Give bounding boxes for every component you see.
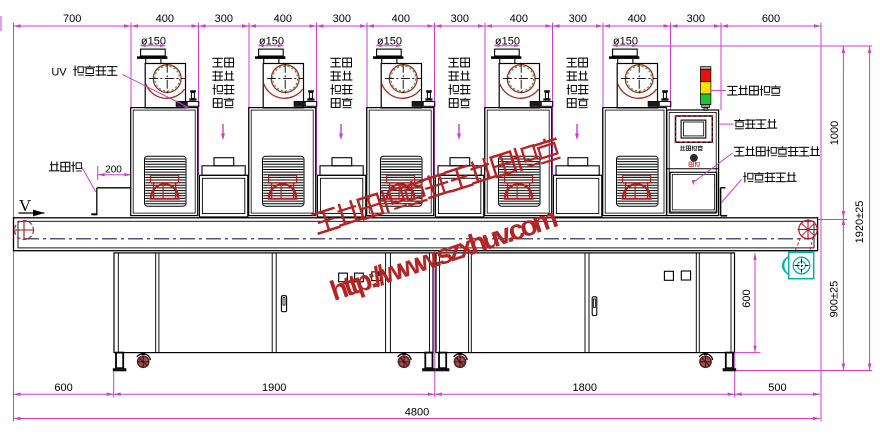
svg-text:300: 300 — [687, 13, 705, 25]
svg-text:UV: UV — [51, 67, 67, 79]
svg-text:4800: 4800 — [405, 407, 429, 419]
svg-text:500: 500 — [768, 382, 786, 394]
svg-text:400: 400 — [628, 13, 646, 25]
svg-text:600: 600 — [762, 13, 780, 25]
svg-text:300: 300 — [569, 13, 587, 25]
svg-text:900±25: 900±25 — [829, 281, 841, 318]
svg-text:1000: 1000 — [829, 121, 841, 145]
svg-text:1920±25: 1920±25 — [854, 201, 866, 244]
svg-text:300: 300 — [451, 13, 469, 25]
svg-text:300: 300 — [215, 13, 233, 25]
svg-text:200: 200 — [105, 165, 122, 176]
svg-text:600: 600 — [54, 382, 72, 394]
svg-text:V: V — [19, 196, 32, 215]
svg-text:400: 400 — [156, 13, 174, 25]
svg-text:300: 300 — [333, 13, 351, 25]
svg-text:600: 600 — [741, 289, 753, 307]
svg-text:400: 400 — [274, 13, 292, 25]
svg-text:1800: 1800 — [573, 382, 597, 394]
svg-text:400: 400 — [392, 13, 410, 25]
svg-text:400: 400 — [510, 13, 528, 25]
svg-text:700: 700 — [63, 13, 81, 25]
svg-text:1900: 1900 — [262, 382, 286, 394]
